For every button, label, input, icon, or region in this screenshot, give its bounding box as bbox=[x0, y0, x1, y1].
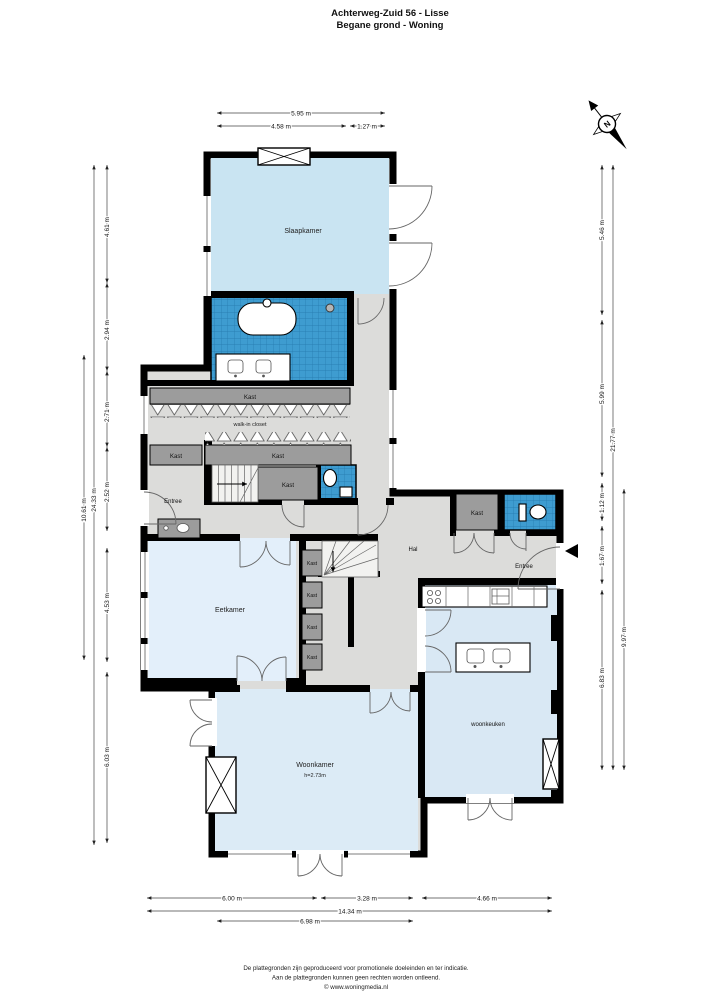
dim-label: 5.99 m bbox=[599, 384, 606, 404]
window-woonkeuken-east bbox=[543, 739, 559, 789]
dim-label: 6.00 m bbox=[222, 896, 242, 903]
floorplan-page: Achterweg-Zuid 56 - Lisse Begane grond -… bbox=[0, 0, 707, 1000]
dimensions-left: 4.61 m 2.94 m 2.71 m 2.52 m 4.53 m 6.03 … bbox=[81, 165, 111, 845]
dim-label: 24.33 m bbox=[91, 488, 98, 512]
vanity-tap-2 bbox=[262, 375, 265, 378]
window bbox=[141, 644, 149, 670]
dim-label: 6.03 m bbox=[104, 747, 111, 767]
label-eetkamer: Eetkamer bbox=[215, 607, 246, 614]
island-tap-2 bbox=[500, 665, 503, 668]
label-entree: Entree bbox=[515, 564, 533, 570]
compass-north-arrow bbox=[585, 98, 598, 111]
footer: De plattegronden zijn geproduceerd voor … bbox=[243, 965, 469, 991]
island-sink-1 bbox=[467, 649, 484, 663]
dim-label: 2.94 m bbox=[104, 320, 111, 340]
dim-label: 4.66 m bbox=[477, 896, 497, 903]
dim-label: 2.71 m bbox=[104, 402, 111, 422]
dim-label: 9.97 m bbox=[621, 627, 628, 647]
vanity-sink-2 bbox=[256, 360, 271, 373]
window bbox=[140, 396, 148, 434]
label-kast: Kast bbox=[307, 593, 318, 599]
staircase-straight bbox=[212, 465, 258, 502]
page-title: Achterweg-Zuid 56 - Lisse Begane grond -… bbox=[331, 8, 449, 31]
dim-label: 21.77 m bbox=[610, 428, 617, 452]
dim-label: 5.95 m bbox=[291, 111, 311, 118]
dim-label: 4.53 m bbox=[104, 593, 111, 613]
dim-label: 10.61 m bbox=[81, 498, 88, 522]
label-kast: Kast bbox=[307, 561, 318, 567]
window bbox=[141, 598, 149, 638]
label-slaapkamer: Slaapkamer bbox=[284, 228, 322, 235]
vanity-tap-1 bbox=[234, 375, 237, 378]
dim-label: 1.27 m bbox=[357, 124, 377, 131]
label-kast: Kast bbox=[307, 655, 318, 661]
window bbox=[141, 552, 149, 592]
label-kast: Kast bbox=[170, 454, 182, 460]
dim-label: 3.28 m bbox=[357, 896, 377, 903]
window bbox=[389, 444, 397, 488]
dim-label: 4.61 m bbox=[104, 217, 111, 237]
shower-head bbox=[326, 304, 334, 312]
entrance-arrow bbox=[565, 544, 578, 558]
entree-sink bbox=[177, 524, 189, 533]
window bbox=[228, 850, 292, 858]
island-tap-1 bbox=[474, 665, 477, 668]
toilet-2 bbox=[530, 505, 546, 519]
label-kast: Kast bbox=[282, 483, 294, 489]
dim-label: 1.67 m bbox=[599, 546, 606, 566]
dim-label: 6.98 m bbox=[300, 919, 320, 926]
label-woonkamer-height: h=2.73m bbox=[304, 773, 326, 779]
label-kast: Kast bbox=[272, 454, 284, 460]
floorplan-svg: Achterweg-Zuid 56 - Lisse Begane grond -… bbox=[0, 0, 707, 1000]
window-woonkamer-west bbox=[206, 757, 236, 813]
footer-line2: Aan de plattegronden kunnen geen rechten… bbox=[272, 975, 441, 982]
label-kast: Kast bbox=[471, 511, 483, 517]
window-slaapkamer-top bbox=[258, 148, 310, 165]
window bbox=[203, 196, 211, 246]
footer-line1: De plattegronden zijn geproduceerd voor … bbox=[243, 965, 469, 972]
title-line2: Begane grond - Woning bbox=[337, 20, 444, 31]
title-line1: Achterweg-Zuid 56 - Lisse bbox=[331, 8, 449, 19]
hanger-row-2 bbox=[205, 432, 351, 445]
label-entree: Entree bbox=[164, 499, 182, 505]
label-walk-in-closet: walk-in closet bbox=[232, 422, 266, 428]
label-kast: Kast bbox=[307, 625, 318, 631]
window bbox=[348, 850, 410, 858]
window bbox=[203, 252, 211, 296]
dim-label: 4.58 m bbox=[271, 124, 291, 131]
wc2-cistern bbox=[519, 504, 526, 521]
footer-line3: © www.woningmedia.nl bbox=[324, 984, 388, 991]
label-kast: Kast bbox=[244, 395, 256, 401]
vanity-sink-1 bbox=[228, 360, 243, 373]
dim-label: 2.52 m bbox=[104, 482, 111, 502]
dimensions-right: 5.46 m 5.99 m 1.12 m 1.67 m 6.83 m 21.77… bbox=[599, 165, 628, 770]
oven bbox=[492, 589, 509, 604]
label-hal: Hal bbox=[408, 547, 417, 553]
staircase-winder bbox=[322, 541, 378, 577]
room-woonkamer bbox=[215, 689, 418, 851]
entree-tap bbox=[164, 526, 168, 530]
vanity bbox=[216, 354, 290, 381]
dim-label: 5.46 m bbox=[599, 220, 606, 240]
toilet-1 bbox=[324, 470, 337, 487]
dim-label: 14.34 m bbox=[338, 909, 362, 916]
bathtub bbox=[238, 303, 296, 335]
bath-tap bbox=[263, 299, 271, 307]
hanger-row-1 bbox=[150, 405, 350, 418]
wc1-sink bbox=[340, 487, 352, 497]
dimensions-bottom: 6.00 m 3.28 m 4.66 m 14.34 m 6.98 m bbox=[147, 896, 552, 926]
room-slaapkamer bbox=[211, 158, 389, 294]
label-woonkeuken: woonkeuken bbox=[470, 722, 505, 728]
dim-label: 1.12 m bbox=[599, 493, 606, 513]
window bbox=[389, 390, 397, 438]
compass: N bbox=[575, 90, 640, 160]
room-woonkeuken bbox=[425, 585, 557, 797]
dim-label: 6.83 m bbox=[599, 668, 606, 688]
label-woonkamer: Woonkamer bbox=[296, 762, 334, 769]
island-sink-2 bbox=[493, 649, 510, 663]
dimensions-top: 5.95 m 4.58 m 1.27 m bbox=[217, 111, 385, 131]
